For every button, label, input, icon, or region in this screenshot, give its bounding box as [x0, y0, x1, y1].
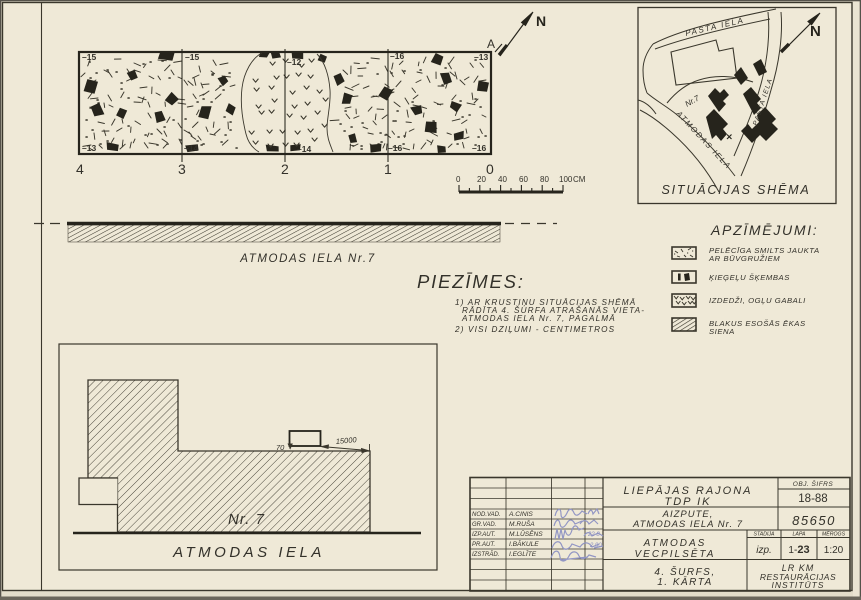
svg-text:0: 0 [486, 161, 494, 177]
svg-text:AR BŪVGRUŽIEM: AR BŪVGRUŽIEM [708, 254, 780, 263]
svg-text:100: 100 [559, 175, 573, 184]
svg-text:18-88: 18-88 [798, 493, 827, 505]
svg-text:3: 3 [178, 161, 186, 177]
svg-text:–16: –16 [390, 51, 404, 61]
svg-text:N: N [810, 23, 821, 40]
svg-text:1:20: 1:20 [824, 545, 844, 556]
svg-text:M.RUŠA: M.RUŠA [509, 519, 535, 528]
svg-text:40: 40 [498, 175, 507, 184]
svg-text:2: 2 [281, 161, 289, 177]
svg-text:I.EGLĪTE: I.EGLĪTE [509, 550, 537, 558]
svg-text:–14: –14 [184, 143, 198, 153]
svg-text:ATMODAS IELA Nr.7: ATMODAS IELA Nr.7 [239, 253, 375, 265]
svg-text:1-23: 1-23 [788, 544, 809, 556]
svg-text:GR.VAD.: GR.VAD. [472, 522, 496, 528]
svg-text:–13: –13 [474, 52, 488, 62]
svg-text:1. KĀRTA: 1. KĀRTA [657, 576, 713, 588]
svg-text:IZP.AUT.: IZP.AUT. [472, 532, 496, 538]
svg-text:izp.: izp. [756, 545, 772, 556]
svg-text:20: 20 [477, 175, 486, 184]
svg-text:–15: –15 [185, 52, 199, 62]
svg-text:1: 1 [384, 161, 392, 177]
svg-text:IZSTRĀD.: IZSTRĀD. [472, 551, 499, 558]
svg-text:TDP IK: TDP IK [664, 496, 711, 508]
svg-text:LAPA: LAPA [793, 532, 806, 538]
svg-text:SITUĀCIJAS SHĒMA: SITUĀCIJAS SHĒMA [662, 183, 811, 197]
svg-text:60: 60 [519, 175, 528, 184]
svg-text:ATMODAS IELA Nr. 7, PAGALMĀ: ATMODAS IELA Nr. 7, PAGALMĀ [461, 313, 616, 323]
svg-text:15000: 15000 [335, 435, 357, 446]
svg-text:APZĪMĒJUMI:: APZĪMĒJUMI: [710, 222, 818, 238]
svg-text:–15: –15 [82, 52, 96, 62]
svg-text:NOD.VAD.: NOD.VAD. [472, 512, 501, 518]
svg-text:CM: CM [573, 175, 586, 184]
svg-text:–13: –13 [82, 143, 96, 153]
svg-text:INSTITŪTS: INSTITŪTS [772, 580, 825, 590]
svg-text:I.BĀKULE: I.BĀKULE [509, 540, 539, 548]
svg-text:Nr. 7: Nr. 7 [228, 511, 265, 528]
svg-text:2) VISI DZIĻUMI - CENTIMETROS: 2) VISI DZIĻUMI - CENTIMETROS [454, 325, 615, 334]
svg-text:VECPILSĒTA: VECPILSĒTA [635, 548, 716, 560]
svg-text:STADIJA: STADIJA [754, 532, 775, 538]
svg-text:–14: –14 [297, 144, 311, 154]
svg-text:N: N [536, 13, 546, 29]
svg-text:0: 0 [456, 175, 461, 184]
svg-text:70: 70 [276, 443, 285, 452]
svg-text:PR.AUT.: PR.AUT. [472, 542, 495, 548]
svg-text:22 8: 22 8 [587, 532, 600, 538]
svg-text:85650: 85650 [792, 513, 836, 528]
svg-text:MĒROGS: MĒROGS [822, 531, 846, 538]
svg-text:ĶIEĢEĻU ŠĶEMBAS: ĶIEĢEĻU ŠĶEMBAS [709, 273, 790, 282]
svg-text:A: A [487, 37, 495, 51]
svg-text:SIENA: SIENA [709, 327, 735, 336]
svg-text:ATMODAS IELA: ATMODAS IELA [172, 544, 325, 561]
svg-text:OBJ. ŠIFRS: OBJ. ŠIFRS [793, 479, 834, 488]
svg-text:M.LŪSĒNS: M.LŪSĒNS [509, 530, 543, 538]
svg-text:4: 4 [76, 161, 84, 177]
svg-text:80: 80 [540, 175, 549, 184]
svg-text:–16: –16 [388, 143, 402, 153]
svg-text:A.CINIS: A.CINIS [508, 511, 533, 518]
svg-text:ATMODAS: ATMODAS [643, 538, 707, 549]
svg-text:–12: –12 [287, 57, 301, 67]
svg-text:2.90: 2.90 [589, 543, 602, 549]
svg-text:ATMODAS IELA Nr. 7: ATMODAS IELA Nr. 7 [632, 519, 743, 530]
svg-text:IZDEDŽI, OGĻU GABALI: IZDEDŽI, OGĻU GABALI [709, 296, 806, 305]
svg-text:PIEZĪMES:: PIEZĪMES: [417, 271, 525, 292]
svg-text:–16: –16 [472, 143, 486, 153]
